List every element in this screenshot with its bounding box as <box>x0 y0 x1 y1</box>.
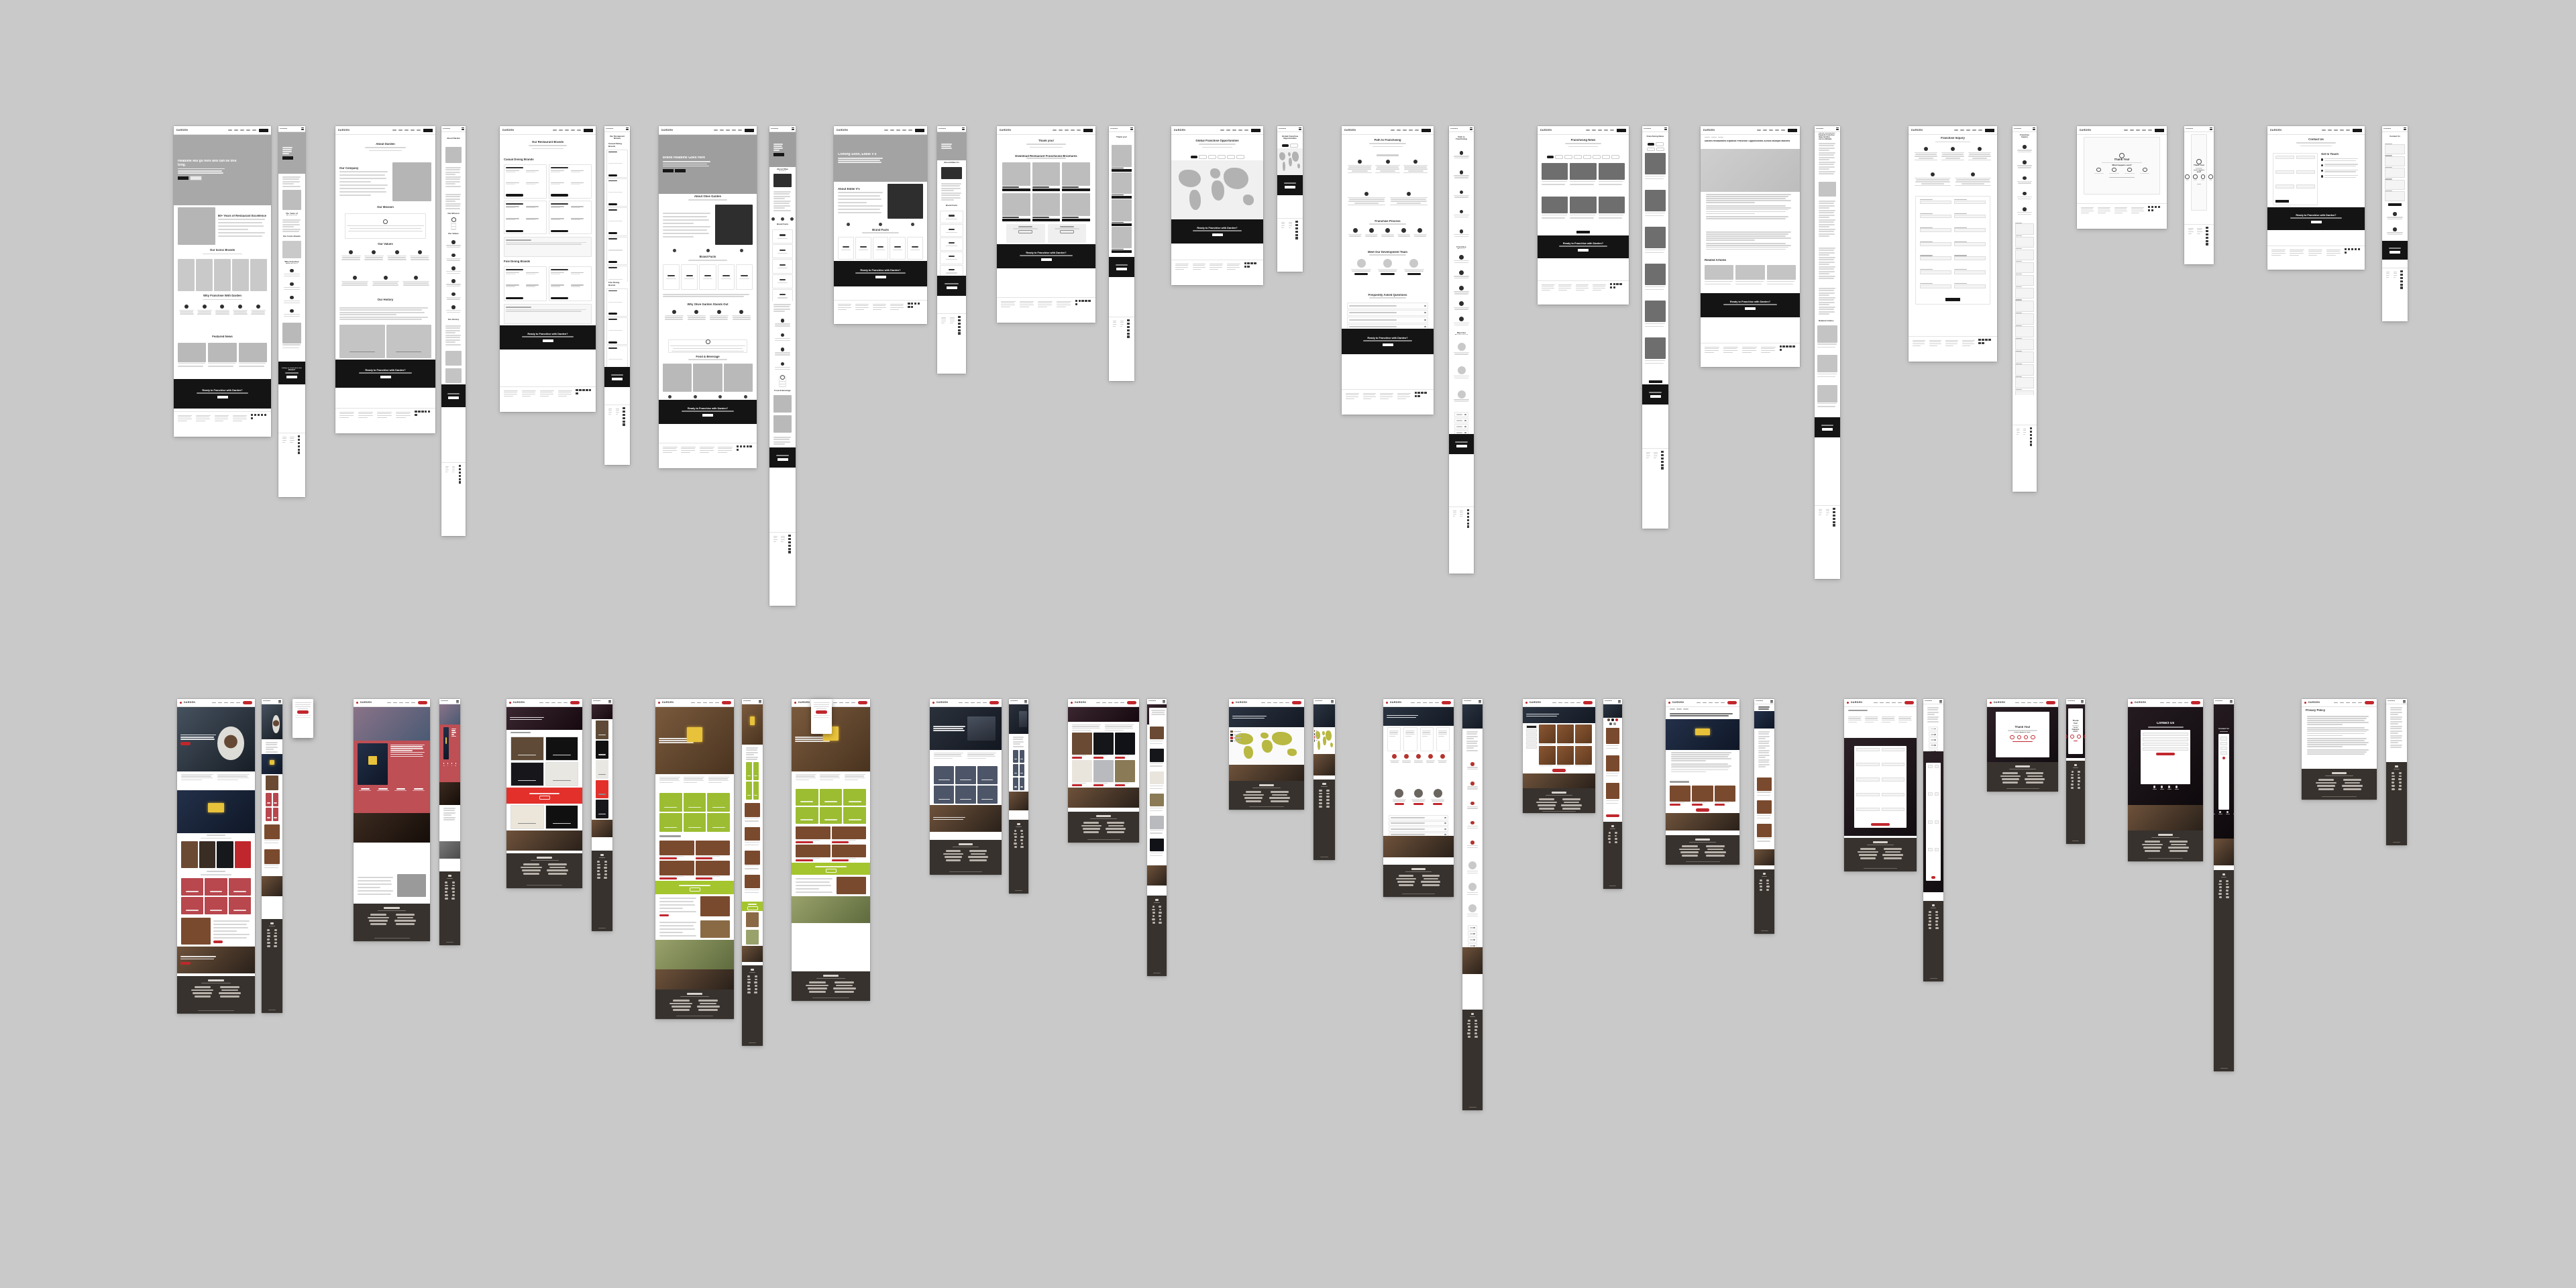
section-tycard: Thank You!What happens next? <box>1987 707 2058 762</box>
artboard-hifi-brand-detail-overlay-popup[interactable] <box>811 699 832 734</box>
artboard-wf-brand-detail-mobile[interactable]: DARDENAbout Olive GardenBrand FactsFood … <box>769 126 796 606</box>
brand-logo <box>523 863 539 865</box>
section-btn <box>1666 807 1739 813</box>
avatar <box>1383 259 1392 268</box>
brand-logo <box>2071 777 2074 779</box>
filter-chip <box>1583 155 1591 159</box>
section-photo <box>177 790 255 833</box>
logo-text: DARDEN <box>513 701 525 704</box>
logo-text: DARDEN <box>338 129 350 131</box>
section-p <box>769 189 796 215</box>
artboard-hifi-contact-mobile[interactable]: DARDENContact Us <box>2214 699 2234 1071</box>
footer-column <box>282 435 286 495</box>
form-input <box>2385 191 2405 201</box>
artboard-wf-article-mobile[interactable]: DARDENDarden Restaurants Expands Franchi… <box>1815 126 1840 579</box>
brand-logo <box>1326 802 1329 804</box>
social-icon <box>298 445 300 447</box>
artboard-hifi-global-mobile[interactable]: DARDEN <box>1313 699 1335 860</box>
section-dfoot <box>1147 896 1167 976</box>
brand-logo <box>1474 1023 1477 1025</box>
logo-text: DARDEN <box>263 700 270 702</box>
section-photo <box>1666 719 1739 750</box>
contact-info: Get In Touch <box>2321 153 2359 205</box>
section-p <box>659 291 757 301</box>
social-icon <box>1467 516 1469 518</box>
grid-tile <box>596 741 608 759</box>
section-cta: Ready to Franchise with Darden? <box>278 362 305 384</box>
filter-chip <box>1615 718 1618 721</box>
brand-logo <box>1107 822 1124 824</box>
brand-logo <box>274 942 277 944</box>
nav-cta-button <box>1904 701 1914 704</box>
card-image <box>659 841 694 855</box>
map-continent <box>1287 749 1296 755</box>
hamburger-icon <box>2081 700 2084 703</box>
section-heading: Our Restaurant Brands <box>504 141 592 144</box>
map-continent <box>1318 741 1320 750</box>
section-heading: Why Franchise With Darden <box>178 294 267 298</box>
text-column <box>1848 715 1862 737</box>
icon-row <box>1465 900 1480 922</box>
artboard-hifi-contact-desktop[interactable]: DARDENContact Us <box>2128 699 2203 861</box>
brand-logo <box>1271 800 1289 802</box>
footer-column <box>1929 339 1943 360</box>
section-bstack <box>604 148 630 282</box>
artboard-hifi-about-mobile[interactable]: DARDEN <box>439 699 460 945</box>
hamburger-icon <box>1770 700 1773 703</box>
brand-logo <box>1705 851 1725 853</box>
brand-logo <box>1152 912 1155 914</box>
card-button <box>832 841 849 843</box>
section-nav: DARDEN <box>2267 126 2365 135</box>
grid-tile <box>1013 750 1018 763</box>
news-card <box>1570 163 1596 194</box>
section-head: Global Franchise Opportunities <box>1277 132 1303 143</box>
section-p <box>441 323 466 350</box>
artboard-hifi-brand-detail-desktop-alt[interactable]: DARDEN <box>792 699 870 1001</box>
hamburger-icon <box>1331 700 1334 703</box>
section-foot <box>335 408 435 433</box>
section-cardstack <box>1815 323 1840 417</box>
section-faq <box>1342 301 1434 329</box>
section-tycard: Thank You!What happens next? <box>2066 704 2085 758</box>
social-icon <box>743 445 745 447</box>
nav-cta-button <box>2353 129 2362 132</box>
cta-button <box>1285 186 1295 189</box>
social-icon <box>958 323 960 325</box>
footer-social <box>2148 206 2163 227</box>
brand-logo <box>2398 788 2402 790</box>
social-icon <box>459 472 461 474</box>
artboard-wf-inquiry-desktop[interactable]: DARDENFranchise Inquiry <box>1909 126 1997 362</box>
form-input <box>1856 748 1879 751</box>
icon-row <box>1465 857 1480 879</box>
footer-column <box>2081 206 2094 227</box>
brand-logo <box>597 867 600 869</box>
artboard-hifi-coming-soon-desktop[interactable]: DARDEN <box>930 699 1002 875</box>
footer-column <box>2197 227 2202 262</box>
cta-button <box>1116 268 1127 271</box>
logo-icon <box>1232 702 1234 704</box>
artboard-hifi-home-desktop[interactable]: DARDEN <box>177 699 255 1014</box>
form-input <box>1856 793 1879 796</box>
artboard-wf-global-desktop[interactable]: DARDENGlobal Franchise OpportunitiesRead… <box>1171 126 1263 285</box>
artboard-wf-brand-detail-desktop[interactable]: DARDENBrand Headline Goes HereAbout Oliv… <box>659 126 757 468</box>
section-redblock <box>354 741 430 813</box>
footer-column <box>2131 206 2145 227</box>
brand-logo <box>1615 838 1617 840</box>
nav-cta-button <box>1251 129 1260 132</box>
photo-card <box>1093 733 1114 759</box>
section-heading: About Olive Garden <box>773 168 792 171</box>
icon-column <box>1914 172 1951 187</box>
section-nav: DARDEN <box>834 126 927 135</box>
artboard-hifi-path-mobile[interactable]: DARDEN <box>1462 699 1483 1110</box>
icon-column <box>197 305 213 315</box>
section-mnav: DARDEN <box>604 126 630 132</box>
map-continent <box>1326 731 1332 741</box>
section-photo <box>1383 707 1454 726</box>
artboard-hifi-inquiry-desktop[interactable]: DARDEN <box>1844 699 1917 871</box>
section-iconstack <box>278 265 305 321</box>
social-icon <box>1295 231 1297 233</box>
footer-column <box>718 445 733 466</box>
icon-column <box>1389 192 1429 207</box>
profile-button <box>1395 803 1404 805</box>
contact-form <box>2273 153 2318 205</box>
artboard-hifi-brands-mobile[interactable]: DARDEN <box>592 699 612 931</box>
social-icon <box>1780 349 1782 351</box>
section-head: About Darden <box>441 132 466 146</box>
section-icons <box>659 247 757 254</box>
icon-column <box>233 305 248 315</box>
section-mnav: DARDEN <box>1109 126 1134 132</box>
profile-button <box>1381 273 1395 275</box>
logo-icon <box>1990 702 1992 704</box>
news-card <box>1767 265 1796 292</box>
section-heading: Privacy Policy <box>2306 709 2325 712</box>
artboard-hifi-news-mobile[interactable]: DARDEN <box>1603 699 1622 889</box>
artboard-hifi-thank-you-mobile[interactable]: DARDENThank You!What happens next? <box>2066 699 2085 844</box>
social-icon <box>251 414 253 416</box>
logo-text: DARDEN <box>798 701 810 704</box>
section-foot <box>441 462 466 536</box>
content-card <box>451 218 456 230</box>
artboard-wf-thank-you-downloads-desktop[interactable]: DARDENThank you!Download Restaurant Fran… <box>997 126 1095 323</box>
stats-row <box>358 787 426 792</box>
artboard-wf-path-desktop[interactable]: DARDENPath to FranchisingFranchise Proce… <box>1342 126 1434 415</box>
process-step <box>1414 754 1424 763</box>
icon-column <box>1914 147 1938 162</box>
artboard-wf-brands-mobile[interactable]: DARDENOur Restaurant BrandsCasual Dining… <box>604 126 630 465</box>
footer-brand-logos <box>1014 830 1024 848</box>
logo-text: DARDEN <box>1000 129 1011 131</box>
section-cta <box>441 384 466 407</box>
stat-card <box>718 264 735 290</box>
artboard-wf-thank-you-desktop[interactable]: DARDENThank You!What happens next? <box>2077 126 2167 229</box>
section-cardstack <box>1754 775 1774 849</box>
section-p <box>335 305 435 323</box>
section-cardstack <box>1147 724 1167 865</box>
brand-logo <box>971 853 986 855</box>
section-article <box>1701 229 1800 258</box>
brand-logo <box>2392 775 2395 777</box>
artboard-hifi-privacy-mobile[interactable]: DARDEN <box>2386 699 2407 845</box>
brand-logo <box>1562 798 1580 800</box>
section-p <box>1754 729 1774 775</box>
artboard-hifi-brand-detail-desktop[interactable]: DARDEN <box>655 699 734 1019</box>
section-row <box>742 911 763 928</box>
brand-logo <box>808 987 827 989</box>
footer-column <box>681 445 696 466</box>
footer-column <box>215 414 229 435</box>
section-dfoot <box>1383 865 1454 897</box>
brand-logo <box>2392 782 2394 784</box>
next-step-icons <box>2194 174 2204 182</box>
section-pcards <box>792 825 870 863</box>
section-nav: DARDEN <box>1987 699 2058 707</box>
section-heading: Our Iconic Brands <box>282 235 301 237</box>
section-grid <box>177 877 255 916</box>
card-image <box>1599 163 1625 180</box>
artboard-hifi-privacy-desktop[interactable]: DARDENPrivacy Policy <box>2302 699 2377 800</box>
section-iconcols <box>335 274 435 296</box>
photo-card <box>1072 760 1092 786</box>
section-head: Why Franchise With Darden <box>174 292 271 303</box>
grid-tile <box>1013 777 1018 790</box>
section-split <box>655 894 734 918</box>
artboard-hifi-inquiry-mobile[interactable]: DARDEN <box>1923 699 1943 981</box>
artboard-wf-home-desktop[interactable]: DARDENHeadline will go here and can be t… <box>174 126 271 437</box>
brand-logo <box>836 985 853 987</box>
section-heading: Our Iconic Brands <box>178 249 267 252</box>
news-card <box>1557 724 1574 745</box>
artboard-wf-contact-mobile[interactable]: DARDENContact Us <box>2382 126 2408 321</box>
cta-heading: Ready to Franchise with Darden? <box>527 333 568 335</box>
section-cards <box>1538 162 1629 195</box>
artboard-hifi-brands-desktop[interactable]: DARDEN <box>506 699 582 888</box>
filter-chip <box>1656 142 1664 146</box>
artboard-wf-path-mobile[interactable]: DARDENPath to FranchisingFranchise Proce… <box>1449 126 1474 574</box>
map-continent <box>1179 170 1201 187</box>
section-head: Thank you! <box>1109 132 1134 143</box>
artboard-wf-global-mobile[interactable]: DARDENGlobal Franchise Opportunities <box>1277 126 1303 272</box>
artboard-hifi-home-mobile[interactable]: DARDEN <box>262 699 282 1013</box>
cta-heading: Ready to Franchise with Darden? <box>1026 252 1066 254</box>
section-heading: Thank you! <box>1001 140 1091 143</box>
footer-social <box>908 303 923 322</box>
footer-brand-logos <box>1608 832 1617 843</box>
brand-logo <box>1399 884 1413 886</box>
artboard-hifi-about-desktop[interactable]: DARDEN <box>354 699 430 941</box>
news-card <box>1645 190 1666 226</box>
section-photo <box>742 946 763 962</box>
image-tile <box>217 841 233 868</box>
form-input <box>1954 242 1986 246</box>
brochure-card <box>1112 199 1132 226</box>
artboard-hifi-news-desktop[interactable]: DARDEN <box>1523 699 1595 813</box>
social-icon <box>1415 395 1417 397</box>
brand-logo <box>195 996 211 998</box>
section-cta: Ready to Franchise with Darden? <box>1538 235 1629 258</box>
band-button <box>747 906 758 910</box>
artboard-wf-thank-you-downloads-mobile[interactable]: DARDENThank you! <box>1109 126 1134 381</box>
artboard-hifi-thank-you-downloads-mobile[interactable]: DARDEN <box>1147 699 1167 976</box>
section-head: Franchise Process <box>1342 219 1434 227</box>
artboard-hifi-article-desktop[interactable]: DARDEN <box>1666 699 1739 865</box>
artboard-wf-thank-you-mobile[interactable]: DARDENThank You!What happens next? <box>2184 126 2214 264</box>
section-head <box>177 833 255 840</box>
section-grid <box>506 804 582 830</box>
nav-links <box>515 129 581 130</box>
artboard-wf-about-mobile[interactable]: DARDENAbout DardenOur MissionOur ValuesO… <box>441 126 466 536</box>
nav-cta-button <box>423 129 433 132</box>
contact-method-icons <box>2153 786 2179 790</box>
card-image <box>745 851 760 865</box>
split-text <box>358 874 394 897</box>
feature-icon <box>256 305 260 309</box>
brand-logo <box>1884 848 1902 850</box>
hamburger-icon <box>962 127 965 130</box>
brand-card-wide <box>504 304 592 324</box>
social-icon <box>788 538 790 540</box>
news-card <box>1539 724 1556 745</box>
news-card <box>745 875 760 898</box>
section-foot <box>604 405 630 465</box>
legend-swatch <box>1314 730 1315 732</box>
social-icon <box>1661 458 1663 460</box>
hero-button <box>663 169 674 172</box>
social-icon <box>2400 277 2402 279</box>
section-mnav: DARDEN <box>1277 126 1303 132</box>
brand-logo <box>1021 833 1023 835</box>
brand-logo <box>1766 879 1769 881</box>
hamburger-icon <box>1836 127 1839 130</box>
section-map <box>1277 148 1303 175</box>
footer-brand-logos <box>943 850 989 861</box>
artboard-hifi-thank-you-downloads-desktop[interactable]: DARDEN <box>1068 699 1139 843</box>
artboard-wf-home-mobile[interactable]: DARDEN50+ Years of Restaurant Excellence… <box>278 126 305 497</box>
artboard-wf-brands-desktop[interactable]: DARDENOur Restaurant BrandsCasual Dining… <box>500 126 596 412</box>
cta-heading: Ready to Franchise with Darden? <box>202 389 242 392</box>
faq-row <box>1347 324 1428 329</box>
news-card <box>1645 301 1666 337</box>
filter-chip <box>1227 155 1235 159</box>
artboard-wf-contact-desktop[interactable]: DARDENContact UsGet In TouchReady to Fra… <box>2267 126 2365 270</box>
brand-logo <box>1882 854 1903 856</box>
section-mnav: DARDEN <box>1009 699 1028 704</box>
form-input <box>1954 201 1986 205</box>
brand-logo <box>1860 857 1876 859</box>
text-column <box>1436 727 1450 751</box>
logo-text: DARDEN <box>1450 128 1458 130</box>
thank-you-heading: Thank You! <box>2194 164 2204 166</box>
logo-text: DARDEN <box>1703 129 1715 131</box>
icon-row <box>1452 252 1471 267</box>
artboard-hifi-global-desktop[interactable]: DARDEN <box>1229 699 1304 810</box>
section-split: About Eddie V's <box>834 182 927 221</box>
artboard-hifi-brand-detail-mobile[interactable]: DARDEN <box>742 699 763 1046</box>
brand-logo <box>1929 920 1931 922</box>
section-nav: DARDEN <box>1538 126 1629 135</box>
artboard-hifi-article-mobile[interactable]: DARDEN <box>1754 699 1774 934</box>
artboard-wf-news-mobile[interactable]: DARDENFranchising News <box>1642 126 1668 529</box>
logo-text: DARDEN <box>502 129 514 131</box>
brand-logo <box>1615 832 1617 834</box>
contact-row <box>2321 168 2359 173</box>
section-lhead <box>1754 704 1774 711</box>
section-photo <box>742 704 763 745</box>
section-heading: Our Values <box>445 233 462 235</box>
brochure-image <box>1112 199 1132 221</box>
icon-row <box>1465 757 1480 776</box>
brand-logo <box>747 981 751 983</box>
section-photo <box>2128 805 2203 830</box>
brochure-card <box>1002 193 1030 222</box>
logo-text: DARDEN <box>1344 129 1356 131</box>
social-icon <box>918 303 920 305</box>
logo-text: DARDEN <box>176 129 188 131</box>
avatar <box>1468 904 1477 912</box>
artboard-wf-coming-soon-mobile[interactable]: DARDENAbout Eddie V'sBrand Facts <box>937 126 966 374</box>
brand-logo <box>452 881 455 883</box>
section-head: Contact Us <box>2267 135 2365 151</box>
page-heading: Contact Us <box>2157 722 2174 726</box>
section-hero: Headline will go here and can be this lo… <box>174 135 271 205</box>
artboard-hifi-home-overlay-menu[interactable] <box>292 699 313 738</box>
brand-button <box>608 174 618 176</box>
section-iconcols <box>335 249 435 274</box>
footer-column <box>1397 392 1411 413</box>
section-hl <box>1666 780 1739 784</box>
logo-text: DARDEN <box>743 700 751 702</box>
cta-button <box>2390 251 2400 254</box>
brand-logo <box>1538 804 1556 806</box>
artboard-wf-news-desktop[interactable]: DARDENFranchising NewsReady to Franchise… <box>1538 126 1629 305</box>
next-step-icons <box>2066 735 2085 739</box>
faq-row <box>1929 743 1938 748</box>
brand-logo <box>1152 922 1155 924</box>
artboard-hifi-coming-soon-mobile[interactable]: DARDEN <box>1009 699 1028 894</box>
artboard-hifi-path-desktop[interactable]: DARDEN <box>1383 699 1454 897</box>
section-head: Franchise Inquiry <box>2012 132 2037 140</box>
social-icon <box>251 417 253 419</box>
social-icon <box>1079 300 1081 302</box>
artboard-wf-coming-soon-desktop[interactable]: DARDENComing Soon, Eddie V'sAbout Eddie … <box>834 126 927 324</box>
artboard-wf-inquiry-mobile[interactable]: DARDENFranchise Inquiry <box>2012 126 2037 492</box>
artboard-wf-about-desktop[interactable]: DARDENAbout DardenOur CompanyOur Mission… <box>335 126 435 433</box>
grid-tile <box>229 897 251 914</box>
nav-cta-button <box>1617 129 1626 132</box>
logo-icon <box>932 702 934 704</box>
cta-heading: Ready to Franchise with Darden? <box>1197 227 1237 229</box>
food-plate-image <box>272 715 280 733</box>
artboard-hifi-thank-you-desktop[interactable]: DARDENThank You!What happens next? <box>1987 699 2058 792</box>
icon-row <box>281 293 303 307</box>
stat-card <box>940 237 963 250</box>
card-image <box>1539 746 1556 765</box>
brand-logo <box>1935 924 1938 926</box>
social-icon <box>1467 523 1469 525</box>
social-icon <box>1244 262 1246 264</box>
brand-logo <box>2399 782 2402 784</box>
brand-logo <box>1885 851 1900 853</box>
form-input <box>1935 792 1939 796</box>
social-icon <box>2030 427 2032 429</box>
section-chips <box>1171 154 1263 160</box>
artboard-wf-article-desktop[interactable]: DARDENDarden Restaurants Expands Franchi… <box>1701 126 1800 367</box>
stat-card <box>772 244 793 258</box>
